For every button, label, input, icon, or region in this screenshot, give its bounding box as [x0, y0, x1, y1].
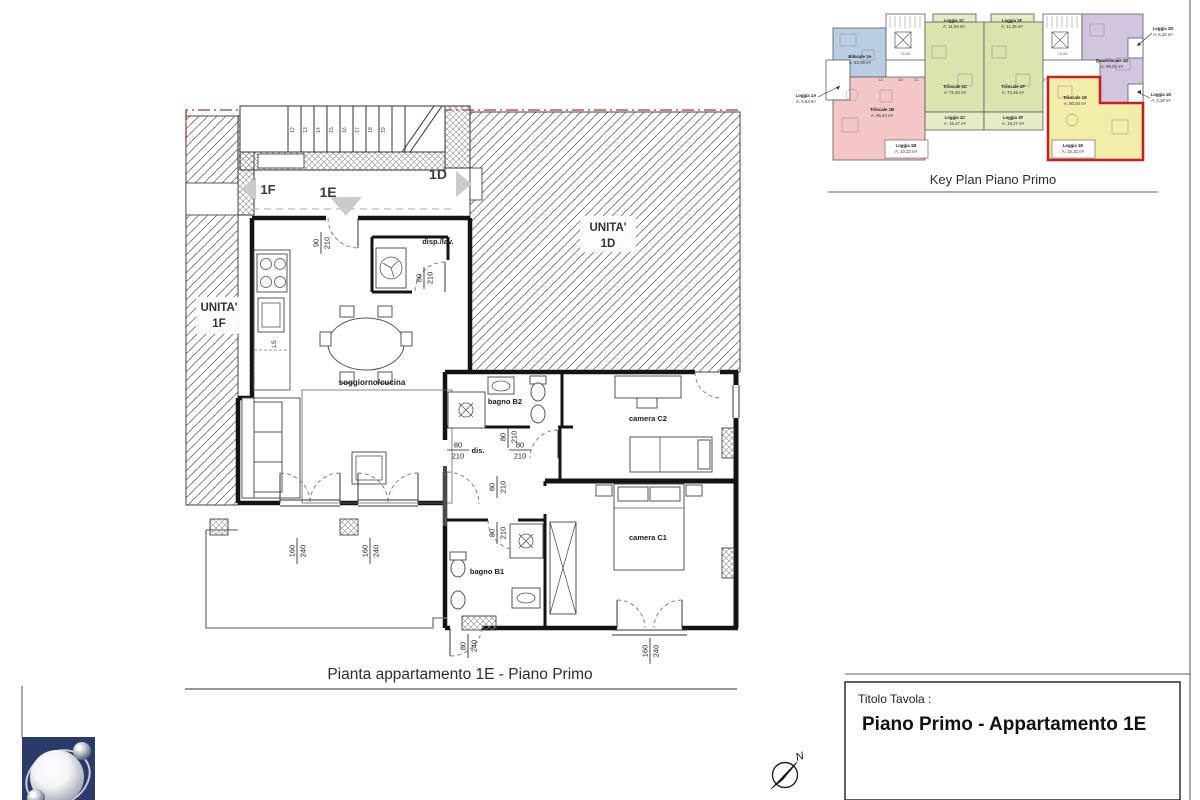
- kp-loggia-1c-bottom-name: Loggia 1C: [945, 115, 966, 120]
- kp-unit-1f-area: A: 72,46 m²: [1002, 90, 1025, 95]
- kitchen-sink-label: LS: [272, 340, 278, 347]
- dim-living-window2: 160 240: [361, 538, 381, 564]
- dim-hall-mid: 80 210: [488, 476, 508, 498]
- hall-label: dis.: [472, 446, 485, 455]
- kp-loggia-1c-top-area: A: 11,94 m²: [943, 24, 965, 29]
- dim-lw1-h: 240: [299, 545, 308, 558]
- bath2-room: bagno B2: [448, 376, 558, 458]
- kp-unit-1c-name: Trilocale 1C: [943, 84, 967, 89]
- stairwell: 12 13 14 15 16 17 18 19: [240, 106, 470, 170]
- dim-ht-w: 80: [499, 433, 508, 441]
- plan-svg: UNITA' 1F UNITA' 1D 12 1: [0, 0, 1200, 800]
- kp-unit-1e-name: Trilocale 1E: [1063, 95, 1087, 100]
- kp-level-mark-1: +3,40: [900, 51, 911, 56]
- dining-table: [320, 306, 412, 383]
- neighbor-unit-1d-area: UNITA' 1D: [470, 112, 740, 372]
- bedroom1-label: camera C1: [629, 533, 667, 542]
- dim-bath1-door: 80 240: [459, 634, 479, 658]
- bath2-label: bagno B2: [488, 397, 522, 406]
- stair-number: 15: [329, 127, 335, 133]
- kp-core-label-1f: 1F: [1042, 77, 1047, 82]
- kp-loggia-1a-area: A: 6,63 m²: [796, 99, 816, 104]
- kp-loggia-1f-top-name: Loggia 1F: [1002, 18, 1023, 23]
- dim-pantry-w: 80: [415, 274, 424, 282]
- kp-loggia-1b-area: A: 10,22 m²: [895, 149, 918, 154]
- corridor-unit-1d-label: 1D: [429, 166, 447, 182]
- dim-entry: 90 210: [312, 232, 332, 254]
- kp-level-mark-2: +3,40: [1057, 51, 1068, 56]
- kp-loggia-1a-name: Loggia 1A: [796, 93, 817, 98]
- bedroom2-label: camera C2: [629, 414, 667, 423]
- dim-hl-w: 80: [454, 441, 462, 450]
- keyplan-unit-1c: [925, 22, 984, 112]
- neighbor-right-label-line1: UNITA': [589, 222, 626, 234]
- dim-lw2-h: 240: [372, 545, 381, 558]
- kp-core-label-1a: 1A: [878, 77, 883, 82]
- kp-unit-1a-name: Bilocale 1A: [848, 54, 871, 59]
- dim-bw-h: 240: [652, 645, 661, 658]
- living-room-label: soggiorno/cucina: [339, 378, 406, 387]
- corridor-unit-1f-label: 1F: [260, 182, 275, 197]
- dim-living-window1: 160 240: [288, 538, 308, 564]
- stair-number: 18: [368, 127, 374, 133]
- kp-loggia-1d-bottom-area: A: 3,18 m²: [1151, 98, 1171, 103]
- north-arrow: N: [771, 750, 806, 789]
- dim-entry-w: 90: [312, 239, 321, 247]
- kp-loggia-1e-name: Loggia 1E: [1063, 143, 1084, 148]
- north-label: N: [794, 750, 805, 764]
- dim-hall-bottom: 80 210: [488, 522, 508, 544]
- bedroom1-room: camera C1: [550, 484, 734, 635]
- entrance-corridor: 1F 1E 1D: [240, 166, 472, 216]
- kp-unit-1d-area: A: 98,01 m²: [1101, 64, 1124, 69]
- entry-door: [328, 218, 358, 248]
- kp-loggia-1f-top-area: A: 11,36 m²: [1001, 24, 1023, 29]
- bedroom2-room: camera C2: [615, 372, 739, 472]
- title-block-label: Titolo Tavola :: [858, 692, 931, 706]
- plan-caption: Pianta appartamento 1E - Piano Primo: [327, 666, 592, 683]
- dim-bw-w: 160: [641, 645, 650, 658]
- kp-loggia-1d-bottom-name: Loggia 1D: [1151, 92, 1172, 97]
- sliding-door: [443, 466, 447, 526]
- title-block-title: Piano Primo - Appartamento 1E: [862, 714, 1146, 735]
- dim-hr-w: 80: [516, 441, 524, 450]
- kp-loggia-1f-bottom-area: A: 15,27 m²: [1002, 121, 1025, 126]
- kp-loggia-1e-area: A: 16,32 m²: [1062, 149, 1085, 154]
- stair-number: 17: [355, 127, 361, 133]
- kp-unit-1a-area: A: 63,08 m²: [849, 60, 872, 65]
- neighbor-left-label-line1: UNITA': [200, 302, 237, 314]
- kp-unit-1c-area: A: 72,40 m²: [944, 90, 967, 95]
- title-block: Titolo Tavola : Piano Primo - Appartamen…: [845, 674, 1190, 800]
- coffee-table: [352, 452, 386, 484]
- dim-hb-h: 210: [499, 527, 508, 540]
- dim-b1-h: 240: [470, 640, 479, 653]
- sofa: [242, 398, 300, 498]
- kp-loggia-1c-bottom-area: A: 16,27 m²: [944, 121, 967, 126]
- key-plan: Bilocale 1A A: 63,08 m² Trilocale 1B A: …: [796, 14, 1174, 192]
- kp-loggia-1f-bottom-name: Loggia 1F: [1003, 115, 1024, 120]
- kp-loggia-1c-top-name: Loggia 1C: [944, 18, 965, 23]
- dim-lw1-w: 160: [288, 545, 297, 558]
- drawing-sheet: UNITA' 1F UNITA' 1D 12 1: [0, 0, 1200, 800]
- stair-number: 13: [303, 127, 309, 133]
- stair-number: 16: [342, 127, 348, 133]
- stair-number: 19: [381, 127, 387, 133]
- neighbor-right-label-line2: 1D: [601, 238, 616, 250]
- kp-unit-1e-area: A: 80,04 m²: [1064, 101, 1087, 106]
- kitchen-counter: LS: [254, 250, 290, 390]
- stair-number: 14: [316, 127, 322, 133]
- kp-core-label-1c: 1C: [914, 77, 919, 82]
- rug: [302, 390, 452, 503]
- dim-entry-h: 210: [323, 237, 332, 250]
- key-plan-title: Key Plan Piano Primo: [930, 172, 1056, 187]
- kp-loggia-1d-top-name: Loggia 1D: [1153, 26, 1174, 31]
- dim-hm-h: 210: [499, 481, 508, 494]
- keyplan-unit-1f: [984, 22, 1043, 112]
- dim-hl-h: 210: [452, 452, 465, 461]
- main-floor-plan: UNITA' 1F UNITA' 1D 12 1: [185, 106, 740, 689]
- bath1-label: bagno B1: [470, 567, 504, 576]
- dim-hall-left: 80 210: [447, 441, 469, 461]
- corridor-unit-1e-label: 1E: [319, 184, 336, 200]
- kp-unit-1d-name: Quadrilocale 1D: [1096, 58, 1129, 63]
- dim-hb-w: 80: [488, 529, 497, 537]
- dim-hr-h: 210: [514, 452, 527, 461]
- dim-lw2-w: 160: [361, 545, 370, 558]
- neighbor-left-label-line2: 1F: [212, 318, 225, 330]
- keyplan-loggia-1d-top: [1128, 38, 1143, 58]
- kp-unit-1b-area: A: 85,44 m²: [871, 113, 894, 118]
- dim-hm-w: 80: [488, 483, 497, 491]
- dim-b1-w: 80: [459, 642, 468, 650]
- pantry-room: disp./lav.: [372, 237, 454, 292]
- bath1-room: bagno B1: [450, 520, 543, 656]
- kp-unit-1f-name: Trilocale 1F: [1001, 84, 1025, 89]
- kp-loggia-1b-name: Loggia 1B: [896, 143, 917, 148]
- kp-unit-1b-name: Trilocale 1B: [870, 107, 894, 112]
- loggia: [206, 519, 496, 630]
- dim-bedroom1-window: 160 240: [641, 638, 661, 664]
- dim-pantry-h: 210: [426, 272, 435, 285]
- stair-number: 12: [290, 127, 296, 133]
- company-logo: [17, 686, 100, 800]
- pantry-label: disp./lav.: [422, 237, 454, 246]
- kp-core-label-1b: 1B: [898, 77, 903, 82]
- keyplan-loggia-1a: [826, 60, 850, 100]
- kp-loggia-1d-top-area: A: 6,32 m²: [1153, 32, 1173, 37]
